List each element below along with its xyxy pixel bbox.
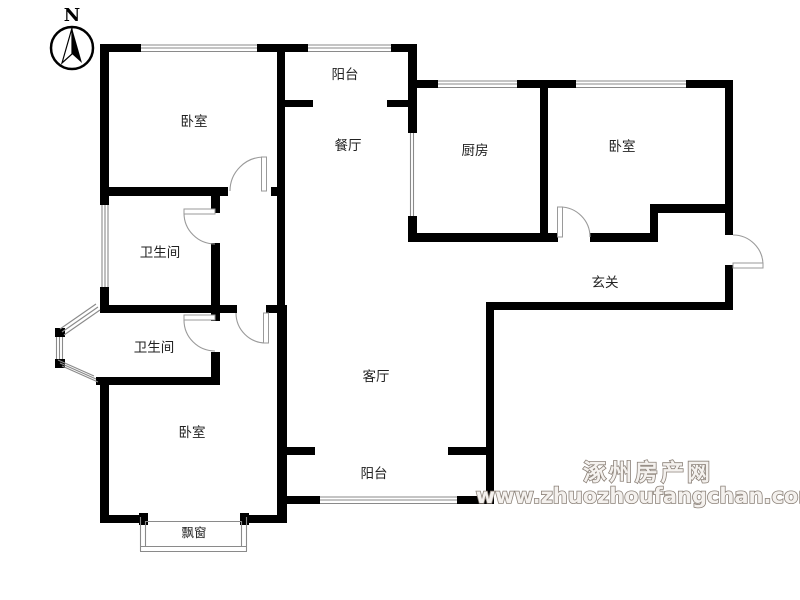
- watermark: 涿州房产网 www.zhuozhoufangchan.com: [476, 459, 800, 508]
- watermark-url: www.zhuozhoufangchan.com: [476, 484, 800, 508]
- door-arc-alcove: [236, 313, 266, 343]
- compass-needle-light: [62, 28, 72, 63]
- compass-n-label: N: [64, 5, 80, 26]
- room-label-bathroom-lower: 卫生间: [134, 340, 175, 356]
- room-label-living-room: 客厅: [363, 368, 390, 385]
- door-arc-bathroom-upper: [184, 213, 215, 244]
- room-label-kitchen: 厨房: [462, 143, 489, 159]
- walls: [55, 44, 733, 525]
- room-label-bedroom-topleft: 卧室: [181, 113, 208, 130]
- floor-plan: N 卧室 阳台 餐厅 厨房 卧室 卫生间 玄关 卫生间 客厅 卧室 阳台 飘窗 …: [0, 0, 800, 600]
- room-label-balcony-top: 阳台: [332, 67, 359, 83]
- room-label-bathroom-upper: 卫生间: [140, 245, 181, 261]
- doors: [184, 157, 763, 351]
- door-arc-bedroom-topright: [560, 207, 590, 237]
- room-label-bedroom-topright: 卧室: [609, 138, 636, 155]
- room-label-balcony-bottom: 阳台: [361, 466, 388, 482]
- room-label-bedroom-bottom: 卧室: [179, 424, 206, 441]
- compass: N: [51, 5, 93, 69]
- door-arc-bedroom-topleft: [230, 157, 264, 191]
- room-label-bay-window: 飘窗: [181, 525, 206, 540]
- door-arc-entry: [733, 235, 763, 265]
- room-label-entry-hall: 玄关: [592, 274, 619, 291]
- door-arc-bathroom-lower: [184, 320, 215, 351]
- compass-needle-dark: [72, 28, 82, 63]
- room-label-dining: 餐厅: [335, 138, 362, 154]
- watermark-title: 涿州房产网: [583, 459, 713, 486]
